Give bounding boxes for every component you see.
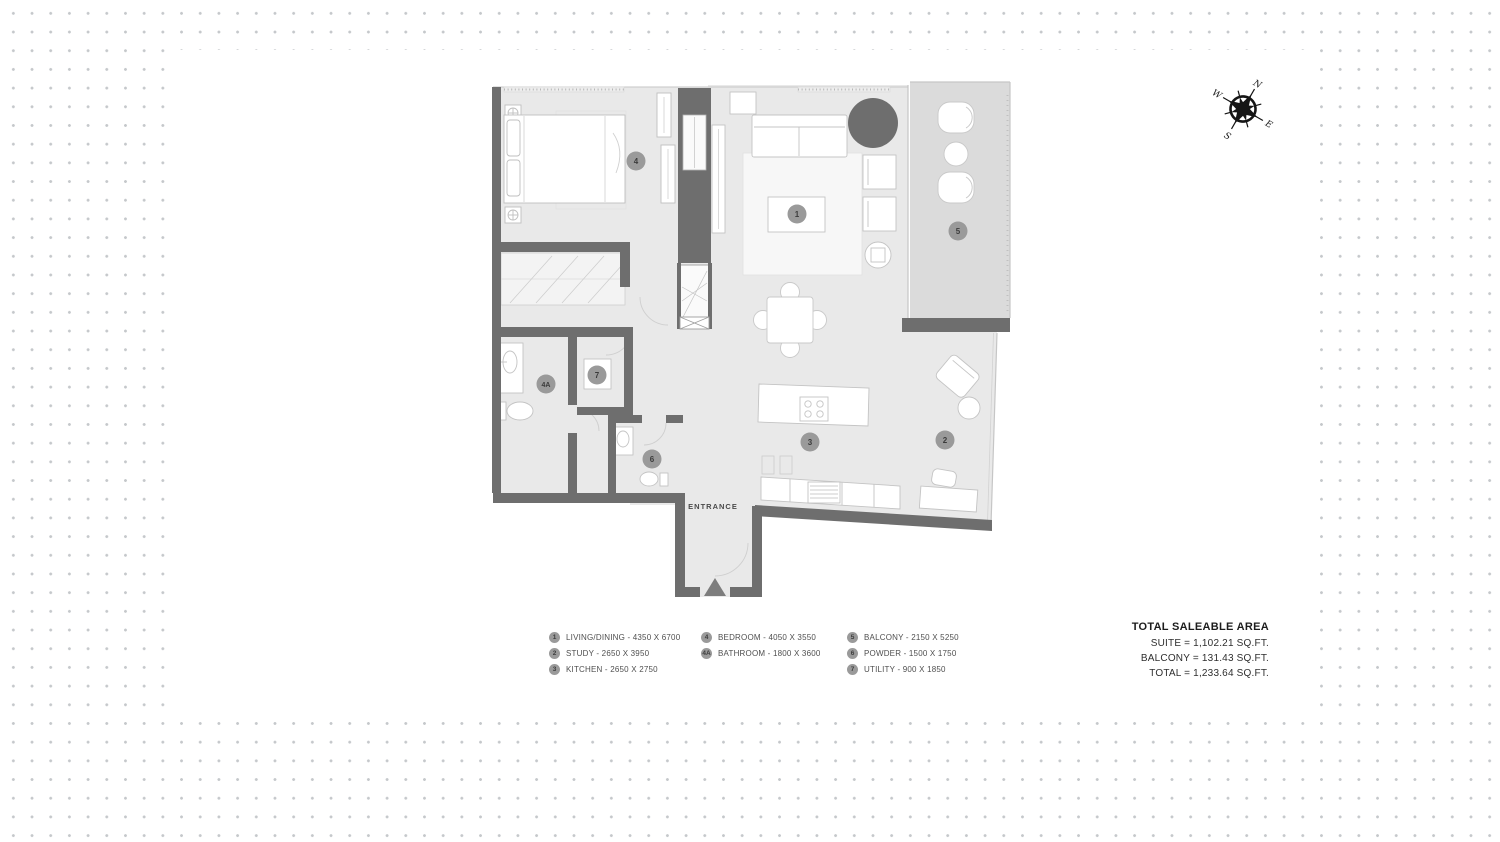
legend-marker: 3 (549, 664, 560, 675)
legend-marker: 4 (701, 632, 712, 643)
svg-text:4A: 4A (542, 382, 551, 389)
media-unit (730, 92, 756, 114)
legend-item-powder: 6 POWDER - 1500 X 1750 (847, 648, 972, 659)
legend-label: BEDROOM - 4050 X 3550 (718, 633, 816, 642)
area-summary: TOTAL SALEABLE AREA SUITE = 1,102.21 SQ.… (1132, 621, 1269, 681)
legend-marker: 4A (701, 648, 712, 659)
room-marker-powder: 6 (643, 450, 662, 469)
floor-plan-svg: ENTRANCE 1 2 3 4 4A 5 6 (480, 75, 1020, 605)
legend-column-1: 1 LIVING/DINING - 4350 X 6700 2 STUDY - … (549, 632, 701, 680)
legend-label: KITCHEN - 2650 X 2750 (566, 665, 658, 674)
svg-text:7: 7 (595, 371, 600, 380)
page-background: { "colors": { "wall": "#6e6e6e", "floor"… (0, 0, 1500, 842)
legend-marker: 6 (847, 648, 858, 659)
room-marker-study: 2 (936, 431, 955, 450)
compass-icon: N E S W (1206, 72, 1280, 146)
lounge-chair (938, 102, 974, 133)
svg-text:6: 6 (650, 455, 655, 464)
sofa (752, 115, 847, 157)
area-suite: SUITE = 1,102.21 SQ.FT. (1132, 636, 1269, 651)
appliance-hatch (808, 482, 840, 503)
svg-text:4: 4 (634, 157, 639, 166)
legend-column-3: 5 BALCONY - 2150 X 5250 6 POWDER - 1500 … (847, 632, 972, 680)
compass-north-label: N (1250, 78, 1264, 92)
legend-column-2: 4 BEDROOM - 4050 X 3550 4A BATHROOM - 18… (701, 632, 847, 680)
area-summary-title: TOTAL SALEABLE AREA (1132, 621, 1269, 633)
legend-item-bathroom: 4A BATHROOM - 1800 X 3600 (701, 648, 847, 659)
pillow (507, 160, 520, 196)
desk (919, 486, 977, 512)
wardrobe (501, 253, 625, 305)
legend-label: BALCONY - 2150 X 5250 (864, 633, 959, 642)
svg-text:3: 3 (808, 438, 813, 447)
toilet-tank (660, 473, 668, 486)
entrance-label: ENTRANCE (688, 502, 738, 511)
study-side-table (958, 397, 980, 419)
toilet (640, 472, 658, 486)
legend-label: STUDY - 2650 X 3950 (566, 649, 649, 658)
lounge-chair (938, 172, 974, 203)
legend-label: UTILITY - 900 X 1850 (864, 665, 946, 674)
pillow (507, 120, 520, 156)
legend-item-bedroom: 4 BEDROOM - 4050 X 3550 (701, 632, 847, 643)
toilet (507, 402, 533, 420)
room-marker-bathroom: 4A (537, 375, 556, 394)
legend-label: BATHROOM - 1800 X 3600 (718, 649, 821, 658)
kitchen-island (758, 384, 869, 426)
legend-marker: 2 (549, 648, 560, 659)
legend: 1 LIVING/DINING - 4350 X 6700 2 STUDY - … (549, 632, 972, 680)
compass: N E S W (1206, 72, 1280, 146)
legend-label: LIVING/DINING - 4350 X 6700 (566, 633, 680, 642)
room-marker-kitchen: 3 (801, 433, 820, 452)
legend-marker: 1 (549, 632, 560, 643)
legend-item-living-dining: 1 LIVING/DINING - 4350 X 6700 (549, 632, 701, 643)
room-marker-utility: 7 (588, 366, 607, 385)
room-marker-living-dining: 1 (788, 205, 807, 224)
room-marker-bedroom: 4 (627, 152, 646, 171)
legend-marker: 5 (847, 632, 858, 643)
legend-item-kitchen: 3 KITCHEN - 2650 X 2750 (549, 664, 701, 675)
area-balcony: BALCONY = 131.43 SQ.FT. (1132, 651, 1269, 666)
svg-text:5: 5 (956, 227, 961, 236)
balcony-table (944, 142, 968, 166)
area-total: TOTAL = 1,233.64 SQ.FT. (1132, 666, 1269, 681)
round-accent-table (848, 98, 898, 148)
legend-item-study: 2 STUDY - 2650 X 3950 (549, 648, 701, 659)
floor-plan: ENTRANCE 1 2 3 4 4A 5 6 (480, 75, 1020, 605)
legend-marker: 7 (847, 664, 858, 675)
svg-text:1: 1 (795, 210, 800, 219)
legend-item-balcony: 5 BALCONY - 2150 X 5250 (847, 632, 972, 643)
compass-east-label: E (1262, 118, 1274, 131)
legend-item-utility: 7 UTILITY - 900 X 1850 (847, 664, 972, 675)
dining-table (767, 297, 813, 343)
compass-south-label: S (1222, 131, 1232, 143)
bed (504, 115, 625, 203)
legend-label: POWDER - 1500 X 1750 (864, 649, 956, 658)
svg-text:2: 2 (943, 436, 948, 445)
room-marker-balcony: 5 (949, 222, 968, 241)
compass-west-label: W (1210, 88, 1224, 102)
